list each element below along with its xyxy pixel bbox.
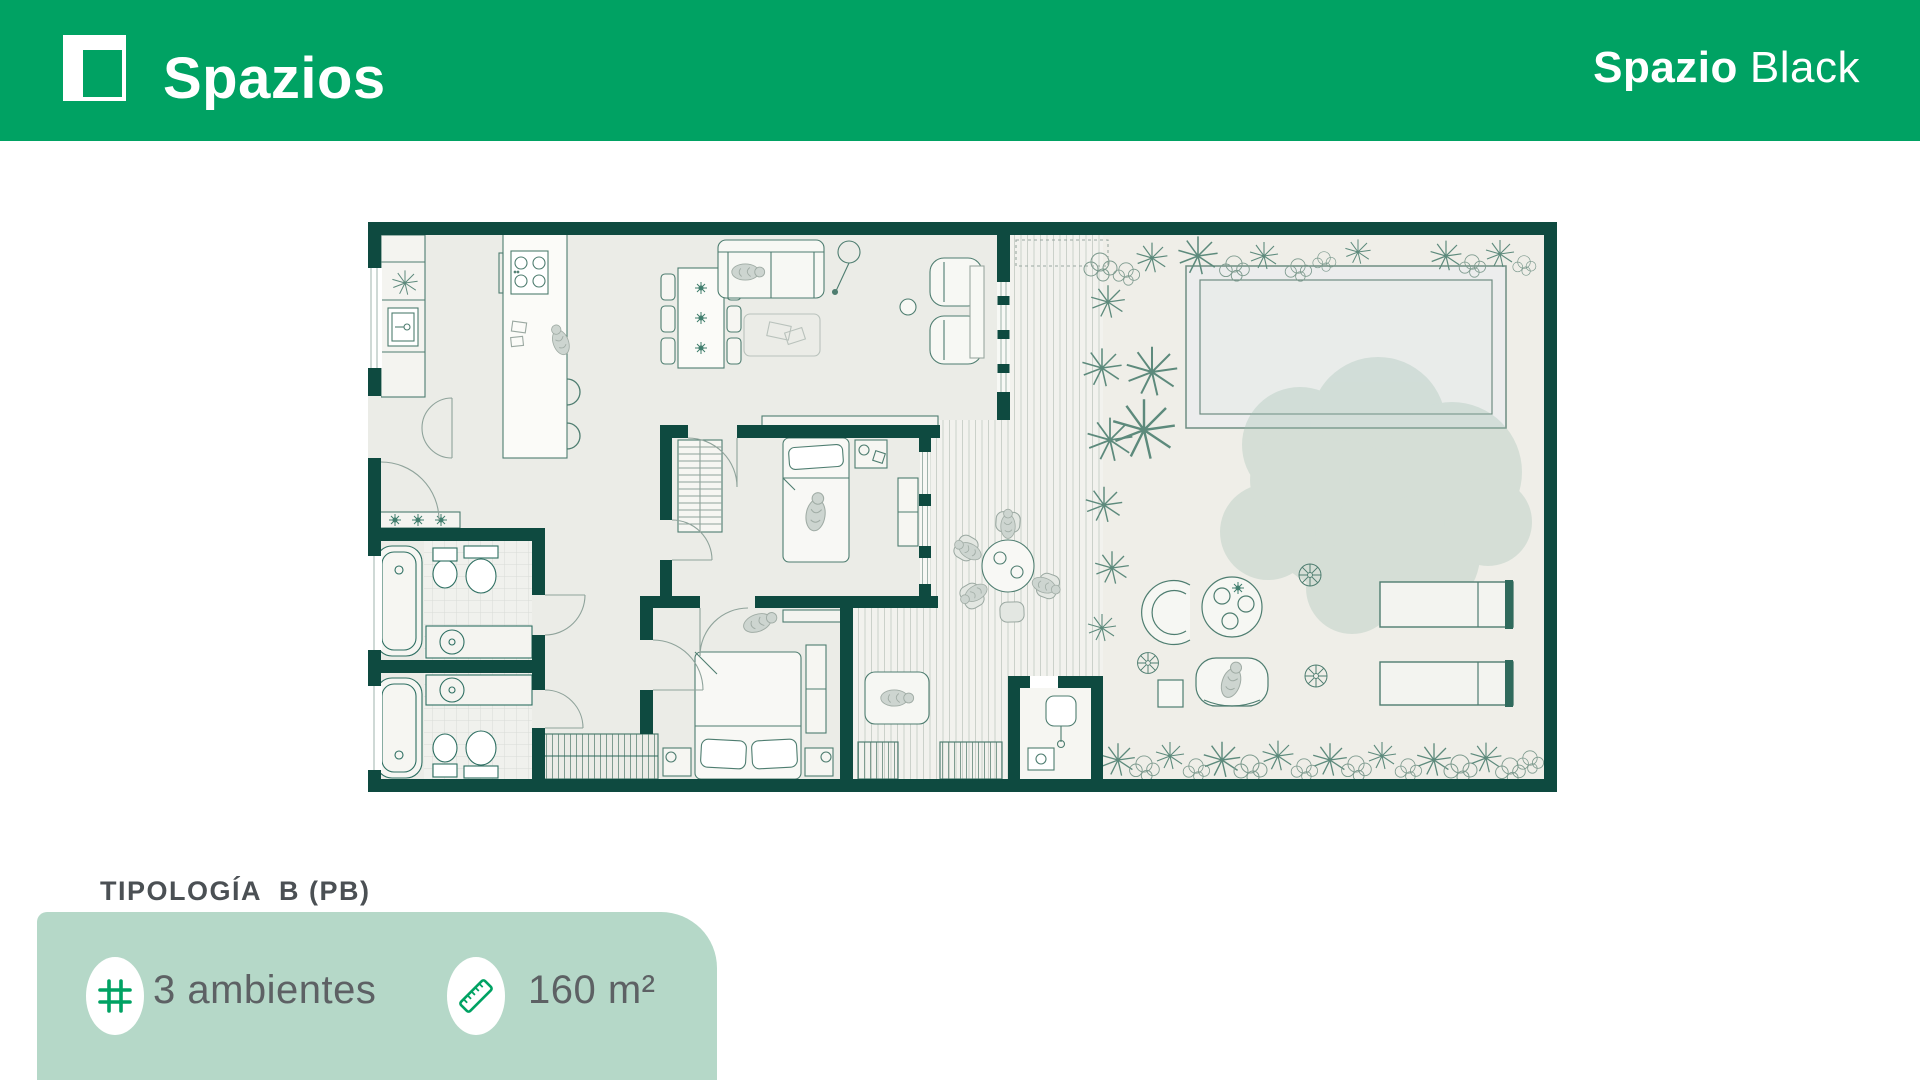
- single-bed: [783, 438, 849, 562]
- sofa: [718, 240, 824, 298]
- vanity-1: [426, 626, 532, 658]
- grid-icon: [97, 978, 133, 1014]
- features-card: 3 ambientes 160 m²: [37, 912, 717, 1080]
- double-bed: [695, 652, 801, 779]
- sun-lounger-1: [1380, 580, 1513, 629]
- area-feature-badge: [447, 957, 505, 1035]
- outdoor-sofa: [1196, 658, 1268, 706]
- sun-lounger-2: [1380, 660, 1513, 707]
- toilet-2: [464, 731, 498, 778]
- bedroom-console: [783, 610, 847, 622]
- bathtub-1: [376, 546, 422, 656]
- cooktop: [511, 251, 548, 294]
- outdoor-side-table: [1158, 680, 1183, 707]
- outdoor-coffee-table: [1202, 577, 1262, 637]
- ruler-icon: [455, 975, 497, 1017]
- vanity-2: [426, 675, 532, 705]
- hallway-closet: [536, 734, 658, 779]
- area-feature-label: 160 m²: [528, 970, 656, 1010]
- toilet-1: [464, 546, 498, 593]
- bidet-1: [433, 548, 457, 588]
- grill-bench-1: [858, 742, 898, 779]
- grill-bench-2: [940, 742, 1002, 779]
- wardrobe-middle: [678, 440, 722, 532]
- page: { "header": { "brand": "Spazios", "produ…: [0, 0, 1920, 1080]
- bidet-2: [433, 734, 457, 777]
- rooms-feature-label: 3 ambientes: [153, 970, 376, 1010]
- typology-label: TIPOLOGÍA B (PB): [100, 876, 371, 907]
- rooms-feature-badge: [86, 957, 144, 1035]
- nightstand-middle: [855, 440, 887, 468]
- deck-lounge-chair: [865, 672, 929, 724]
